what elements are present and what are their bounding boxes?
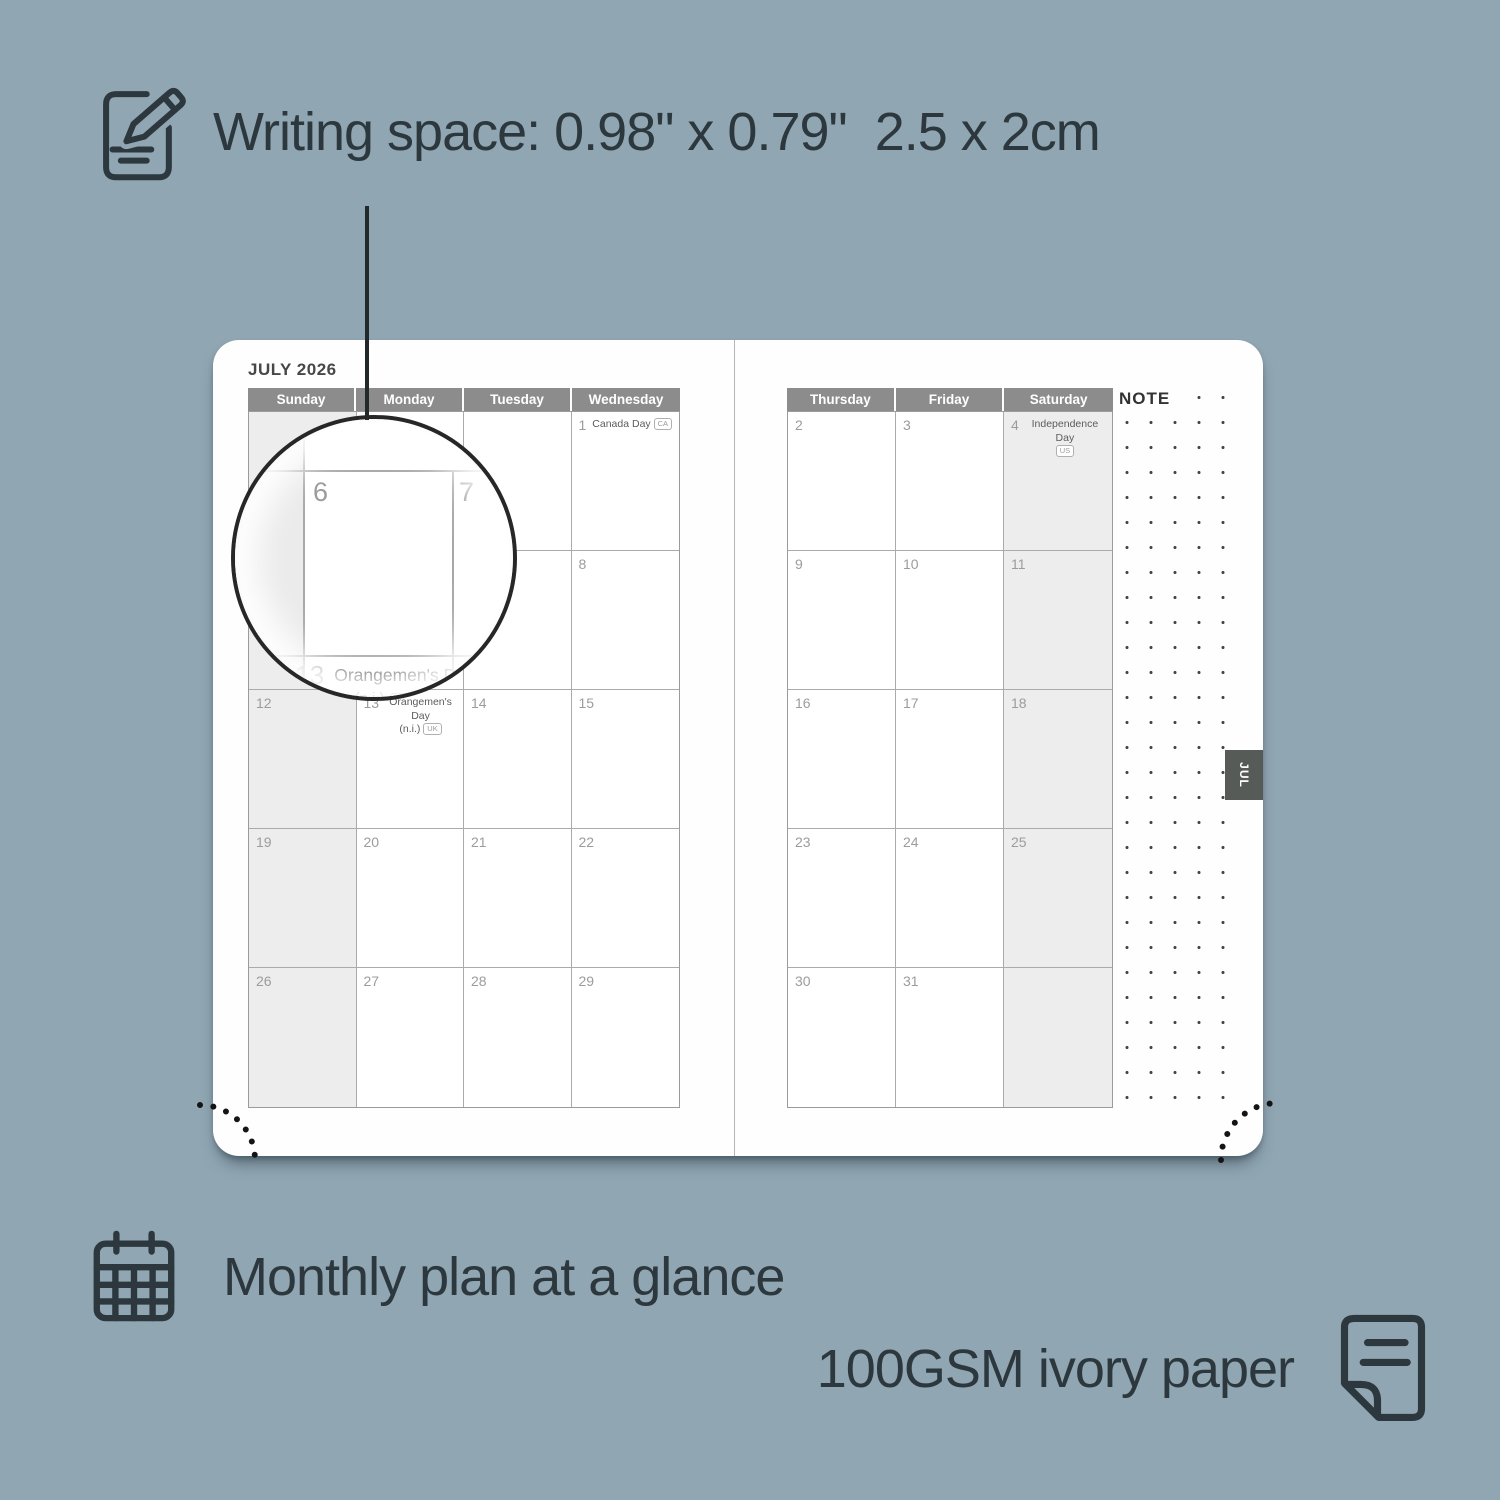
- country-badge: CA: [654, 418, 672, 430]
- calendar-cell: 14: [464, 690, 572, 829]
- holiday: Canada Day CA: [592, 418, 672, 432]
- month-tab-label: JUL: [1237, 762, 1251, 788]
- magnified-holiday-name: Orangemen's Day: [334, 662, 475, 686]
- holiday-name: Orangemen's Day: [389, 696, 452, 722]
- date-number: 25: [1011, 835, 1027, 850]
- country-badge: UK: [423, 723, 441, 735]
- calendar-cell: [1004, 968, 1112, 1107]
- day-header-monday: Monday: [356, 388, 464, 411]
- holiday: Independence DayUS: [1025, 418, 1105, 459]
- date-number: 15: [579, 696, 595, 711]
- date-number: 11: [1011, 557, 1026, 572]
- calendar-cell: 26: [249, 968, 357, 1107]
- calendar-cell: 9: [788, 551, 896, 690]
- writing-space-label: Writing space: 0.98" x 0.79" 2.5 x 2cm: [213, 101, 1100, 163]
- calendar-grid: 234Independence DayUS9101116171823242530…: [787, 411, 1113, 1108]
- date-number: 19: [256, 835, 272, 850]
- calendar-cell: 31: [896, 968, 1004, 1107]
- date-number: 16: [795, 696, 811, 711]
- date-number: 29: [579, 974, 595, 989]
- magnified-grid-line: [235, 470, 513, 472]
- date-number: 22: [579, 835, 595, 850]
- magnified-holiday-suffix: (n.i.): [355, 690, 385, 701]
- date-number: 28: [471, 974, 487, 989]
- day-header-wednesday: Wednesday: [572, 388, 680, 411]
- holiday-name: Independence Day: [1032, 418, 1099, 444]
- calendar-cell: 25: [1004, 829, 1112, 968]
- calendar-cell: 15: [572, 690, 680, 829]
- day-header-thursday: Thursday: [787, 388, 896, 411]
- date-number: 18: [1011, 696, 1027, 711]
- date-number: 30: [795, 974, 811, 989]
- magnified-date: 7: [459, 477, 474, 508]
- month-title: JULY 2026: [248, 360, 337, 380]
- holiday-name: Canada Day: [592, 418, 650, 430]
- day-header-row: ThursdayFridaySaturday: [787, 388, 1113, 411]
- date-number: 9: [795, 557, 803, 572]
- holiday: Orangemen's Day(n.i.) UK: [385, 696, 456, 737]
- calendar-cell: 18: [1004, 690, 1112, 829]
- note-pencil-icon: [95, 82, 191, 182]
- calendar-cell: 4Independence DayUS: [1004, 412, 1112, 551]
- paper-label: 100GSM ivory paper: [817, 1338, 1294, 1400]
- planner-product-image: Writing space: 0.98" x 0.79" 2.5 x 2cm J…: [0, 0, 1500, 1500]
- magnified-grid-line: [235, 655, 513, 657]
- calendar-cell: 1Canada Day CA: [572, 412, 680, 551]
- date-number: 1: [579, 418, 587, 433]
- calendar-cell: 20: [357, 829, 465, 968]
- calendar-cell: 29: [572, 968, 680, 1107]
- date-number: 12: [256, 696, 272, 711]
- calendar-cell: 10: [896, 551, 1004, 690]
- magnified-holiday-cell: 13 Orangemen's Day (n.i.)UK: [287, 662, 483, 701]
- page-spine: [734, 340, 735, 1156]
- paper-icon: [1328, 1308, 1438, 1430]
- calendar-cell: 28: [464, 968, 572, 1107]
- calendar-cell: 22: [572, 829, 680, 968]
- month-tab-jul: JUL: [1225, 750, 1263, 800]
- note-label: NOTE: [1119, 386, 1188, 411]
- calendar-cell: 17: [896, 690, 1004, 829]
- note-dot-grid: [1115, 385, 1235, 1110]
- date-number: 27: [364, 974, 380, 989]
- magnified-date: 13: [295, 662, 324, 688]
- calendar-cell: 2: [788, 412, 896, 551]
- day-header-saturday: Saturday: [1004, 388, 1113, 411]
- date-number: 3: [903, 418, 911, 433]
- calendar-cell: 30: [788, 968, 896, 1107]
- callout-line: [365, 206, 369, 420]
- calendar-cell: 13Orangemen's Day(n.i.) UK: [357, 690, 465, 829]
- writing-space-annotation: Writing space: 0.98" x 0.79" 2.5 x 2cm: [95, 82, 1100, 182]
- calendar-cell: 3: [896, 412, 1004, 551]
- day-header-row: SundayMondayTuesdayWednesday: [248, 388, 680, 411]
- paper-annotation: 100GSM ivory paper: [817, 1308, 1438, 1430]
- calendar-cell: 16: [788, 690, 896, 829]
- calendar-cell: 19: [249, 829, 357, 968]
- calendar-cell: 11: [1004, 551, 1112, 690]
- day-header-tuesday: Tuesday: [464, 388, 572, 411]
- calendar-cell: 24: [896, 829, 1004, 968]
- date-number: 21: [471, 835, 487, 850]
- monthly-plan-label: Monthly plan at a glance: [223, 1246, 784, 1308]
- calendar-cell: 23: [788, 829, 896, 968]
- date-number: 20: [364, 835, 380, 850]
- calendar-cell: 8: [572, 551, 680, 690]
- magnified-date: 6: [313, 477, 328, 508]
- date-number: 24: [903, 835, 919, 850]
- holiday-suffix: (n.i.): [399, 723, 423, 735]
- country-badge: US: [1056, 445, 1074, 457]
- date-number: 31: [903, 974, 919, 989]
- date-number: 4: [1011, 418, 1019, 433]
- calendar-cell: 12: [249, 690, 357, 829]
- date-number: 17: [903, 696, 919, 711]
- date-number: 2: [795, 418, 803, 433]
- date-number: 26: [256, 974, 272, 989]
- calendar-cell: 21: [464, 829, 572, 968]
- date-number: 23: [795, 835, 811, 850]
- monthly-plan-annotation: Monthly plan at a glance: [85, 1230, 784, 1324]
- date-number: 8: [579, 557, 587, 572]
- date-number: 14: [471, 696, 487, 711]
- calendar-right-page: ThursdayFridaySaturday 234Independence D…: [787, 388, 1113, 1108]
- calendar-grid-icon: [85, 1230, 183, 1324]
- calendar-cell: 27: [357, 968, 465, 1107]
- magnifier-circle: 6 7 13 Orangemen's Day (n.i.)UK: [231, 415, 517, 701]
- day-header-sunday: Sunday: [248, 388, 356, 411]
- day-header-friday: Friday: [896, 388, 1005, 411]
- date-number: 10: [903, 557, 919, 572]
